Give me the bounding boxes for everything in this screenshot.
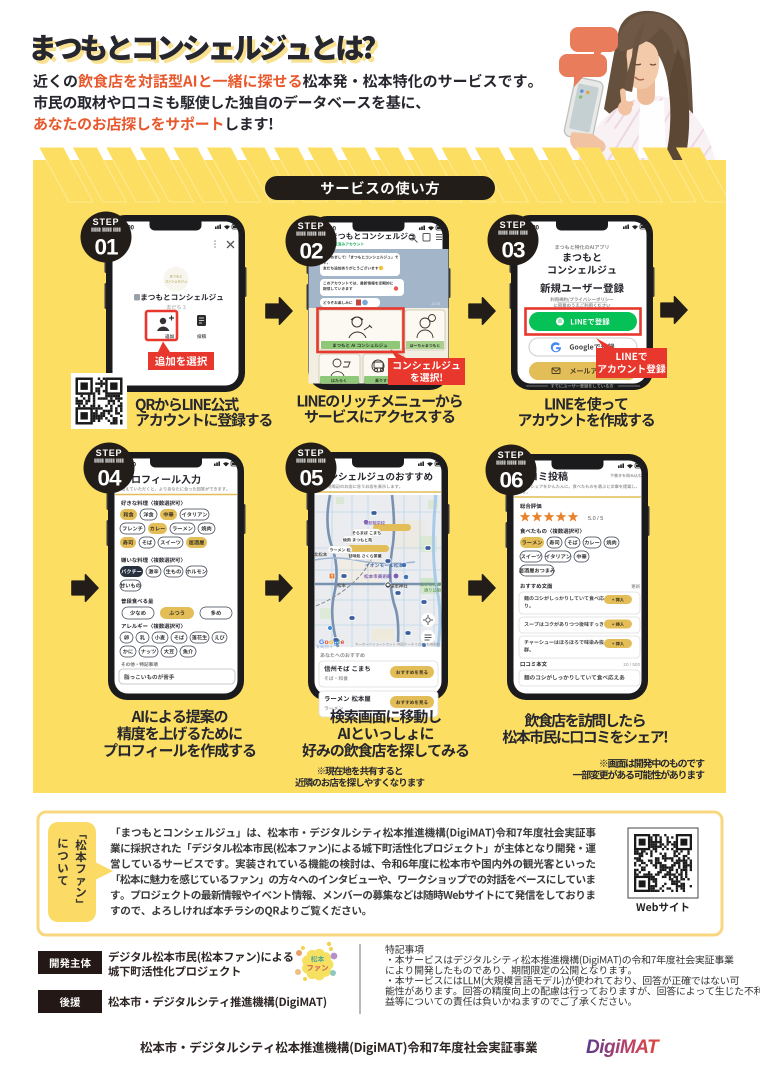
svg-text:05: 05 xyxy=(299,466,323,491)
svg-text:G: G xyxy=(319,639,324,646)
svg-text:02: 02 xyxy=(299,239,323,264)
svg-text:e: e xyxy=(341,639,345,646)
svg-text:STEP: STEP xyxy=(498,450,525,460)
svg-text:04: 04 xyxy=(97,466,122,491)
svg-text:01: 01 xyxy=(94,235,118,260)
svg-text:5.0 / 5: 5.0 / 5 xyxy=(588,516,603,522)
svg-text:STEP: STEP xyxy=(93,217,120,227)
svg-text:DigiMAT: DigiMAT xyxy=(586,1037,660,1058)
svg-text:STEP: STEP xyxy=(298,221,325,231)
svg-text:STEP: STEP xyxy=(96,448,123,458)
svg-text:20 / 500: 20 / 500 xyxy=(623,662,640,667)
svg-text:STEP: STEP xyxy=(500,220,527,230)
svg-text:06: 06 xyxy=(499,468,523,493)
svg-text:STEP: STEP xyxy=(298,448,325,458)
svg-text:03: 03 xyxy=(501,238,525,263)
